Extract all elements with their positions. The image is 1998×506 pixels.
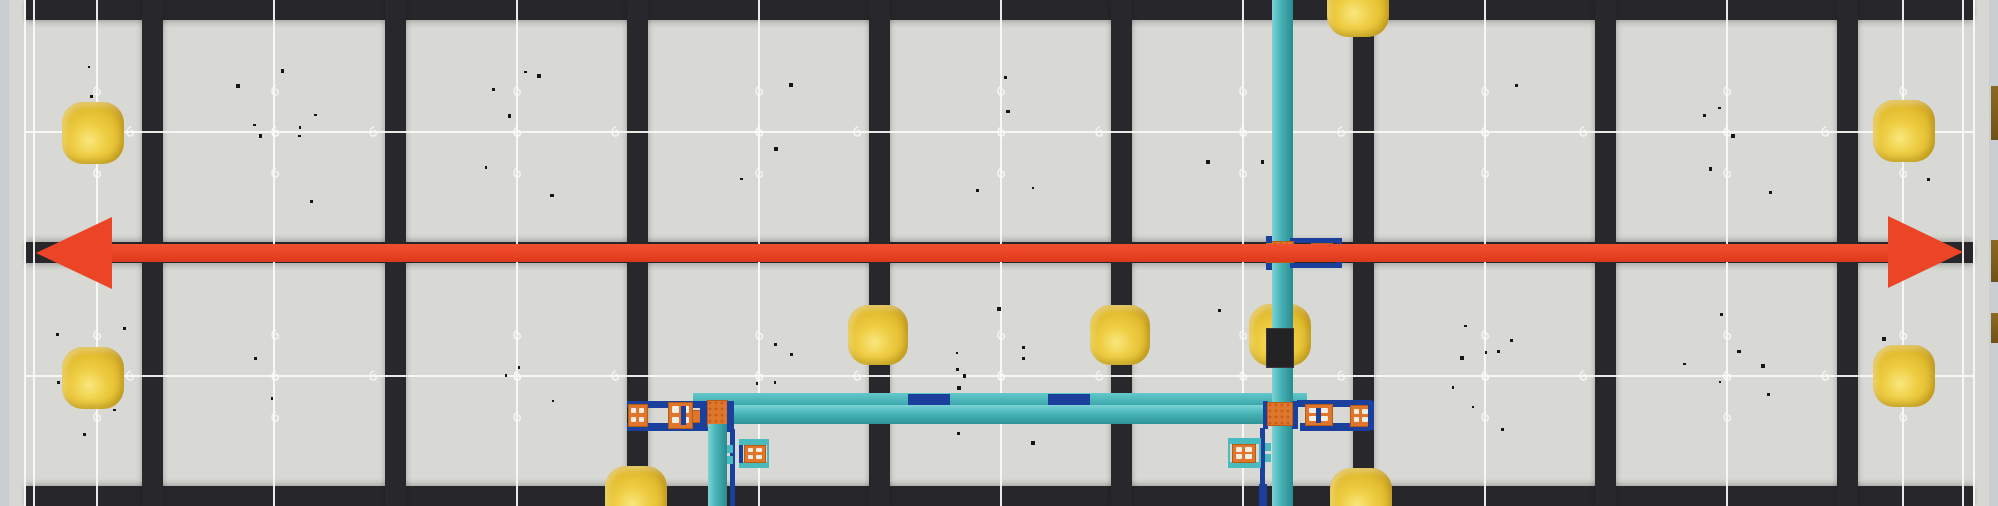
tile-peg-cluster <box>10 242 27 259</box>
tile-peg-cluster <box>1685 202 1702 219</box>
navy-bracket <box>1259 484 1267 506</box>
tile-peg-cluster <box>1839 443 1856 460</box>
navy-bracket <box>1368 401 1374 430</box>
tile-peg-cluster <box>30 121 47 138</box>
tile-peg-cluster <box>105 162 122 179</box>
tile-peg-cluster <box>539 41 556 58</box>
tile-peg-cluster <box>1977 483 1994 500</box>
tile-peg-cluster <box>1950 81 1967 98</box>
tile-peg-cluster <box>1113 41 1130 58</box>
tile-squiggle-mark <box>124 126 136 138</box>
tile-peg-cluster <box>144 483 161 500</box>
tile-peg-cluster <box>342 41 359 58</box>
teal-tab <box>727 456 733 464</box>
tile-peg-cluster <box>263 3 280 20</box>
tile-peg-cluster <box>1448 322 1465 339</box>
tile-peg-cluster <box>10 443 27 460</box>
tile-speck <box>1718 107 1720 109</box>
tile-peg-cluster <box>1171 322 1188 339</box>
tile-peg-cluster <box>1329 363 1346 380</box>
tile-peg-cluster <box>629 81 646 98</box>
tile-peg-cluster <box>816 363 833 380</box>
tile-peg-cluster <box>387 162 404 179</box>
tile-peg-cluster <box>105 41 122 58</box>
tile-peg-cluster <box>1013 483 1030 500</box>
connector-hole <box>1236 447 1242 452</box>
tile-peg-cluster <box>658 363 675 380</box>
tile-squiggle-mark <box>124 370 136 382</box>
tile-peg-cluster <box>500 322 517 339</box>
tile-peg-cluster <box>223 41 240 58</box>
tile-speck <box>756 382 758 384</box>
yellow-ball <box>605 466 667 506</box>
tile-peg-cluster <box>1211 282 1228 299</box>
tile-peg-cluster <box>1724 282 1741 299</box>
tile-peg-cluster <box>30 363 47 380</box>
tile-center-peg-cluster <box>741 115 775 149</box>
tile-peg-cluster <box>184 483 201 500</box>
tile-peg-cluster <box>421 81 438 98</box>
tile-peg-cluster <box>500 81 517 98</box>
tile-peg-cluster <box>387 81 404 98</box>
tile-peg-cluster <box>1013 202 1030 219</box>
tile-peg-cluster <box>1053 322 1070 339</box>
tile-squiggle-mark <box>1819 126 1831 138</box>
tile-speck <box>90 95 93 98</box>
tile-peg-cluster <box>10 41 27 58</box>
tile-peg-cluster <box>387 3 404 20</box>
tile-peg-cluster <box>1764 363 1781 380</box>
tile-speck <box>1927 178 1930 181</box>
tile-peg-cluster <box>1408 41 1425 58</box>
tile-peg-cluster <box>1803 202 1820 219</box>
orange-coupler <box>707 400 728 427</box>
tile-speck <box>1510 339 1513 342</box>
tile-peg-cluster <box>737 41 754 58</box>
tile-peg-cluster <box>184 3 201 20</box>
tile-peg-cluster <box>1013 41 1030 58</box>
tile-peg-cluster <box>1113 121 1130 138</box>
tile-peg-cluster <box>737 3 754 20</box>
tile-center-peg-cluster <box>983 115 1017 149</box>
tile-peg-cluster <box>1803 3 1820 20</box>
tile-peg-cluster <box>776 363 793 380</box>
tile-peg-cluster <box>1329 322 1346 339</box>
tile-peg-cluster <box>500 202 517 219</box>
tile-squiggle-mark <box>995 85 1007 97</box>
tile-peg-cluster <box>1171 363 1188 380</box>
tile-peg-cluster <box>1685 483 1702 500</box>
tile-peg-cluster <box>421 363 438 380</box>
tile-peg-cluster <box>816 483 833 500</box>
tile-peg-cluster <box>1764 202 1781 219</box>
tile-peg-cluster <box>460 81 477 98</box>
tile-speck <box>1472 406 1474 408</box>
tile-peg-cluster <box>1950 41 1967 58</box>
navy-bracket <box>730 429 735 506</box>
tile-peg-cluster <box>658 322 675 339</box>
connector-hole <box>1236 454 1242 459</box>
tile-peg-cluster <box>1685 403 1702 420</box>
tile-peg-cluster <box>1211 483 1228 500</box>
tile-squiggle-mark <box>753 167 765 179</box>
tile-peg-cluster <box>1355 41 1372 58</box>
tile-center-peg-cluster <box>1225 359 1259 393</box>
tile-peg-cluster <box>1922 322 1939 339</box>
tile-peg-cluster <box>1724 403 1741 420</box>
tile-peg-cluster <box>10 81 27 98</box>
tile-peg-cluster <box>1764 81 1781 98</box>
tile-peg-cluster <box>629 3 646 20</box>
navy-bracket <box>739 445 743 463</box>
tile-peg-cluster <box>1977 282 1994 299</box>
tile-peg-cluster <box>421 41 438 58</box>
field-wall-left-outer <box>0 0 9 506</box>
tile-peg-cluster <box>658 41 675 58</box>
yellow-ball <box>1330 468 1392 506</box>
tile-peg-cluster <box>934 162 951 179</box>
tile-peg-cluster <box>1013 443 1030 460</box>
tile-peg-cluster <box>816 202 833 219</box>
tile-peg-cluster <box>1839 121 1856 138</box>
tile-peg-cluster <box>1977 202 1994 219</box>
tile-squiggle-mark <box>753 329 765 341</box>
tile-peg-cluster <box>1113 81 1130 98</box>
tile-peg-cluster <box>1053 121 1070 138</box>
tile-peg-cluster <box>934 121 951 138</box>
tile-peg-cluster <box>460 121 477 138</box>
tile-peg-cluster <box>1566 363 1583 380</box>
tile-peg-cluster <box>1950 322 1967 339</box>
tile-peg-cluster <box>579 41 596 58</box>
navy-bracket <box>1266 263 1272 270</box>
yellow-ball <box>62 102 124 164</box>
tile-peg-cluster <box>1839 162 1856 179</box>
tile-peg-cluster <box>658 3 675 20</box>
tile-center-peg-cluster <box>741 359 775 393</box>
tile-speck <box>518 366 520 368</box>
tile-peg-cluster <box>1211 162 1228 179</box>
tile-peg-cluster <box>658 202 675 219</box>
tile-peg-cluster <box>302 443 319 460</box>
tile-peg-cluster <box>421 322 438 339</box>
tile-peg-cluster <box>1724 162 1741 179</box>
connector-hole <box>1321 408 1328 413</box>
tile-peg-cluster <box>1329 202 1346 219</box>
tile-peg-cluster <box>10 363 27 380</box>
tile-peg-cluster <box>1839 282 1856 299</box>
tile-peg-cluster <box>184 81 201 98</box>
tile-peg-cluster <box>1724 443 1741 460</box>
connector-hole <box>756 448 762 452</box>
tile-peg-cluster <box>1329 162 1346 179</box>
tile-peg-cluster <box>1113 443 1130 460</box>
tile-peg-cluster <box>697 3 714 20</box>
tile-peg-cluster <box>1950 483 1967 500</box>
tile-peg-cluster <box>1977 162 1994 179</box>
tile-peg-cluster <box>539 363 556 380</box>
tile-peg-cluster <box>421 403 438 420</box>
tile-peg-cluster <box>579 162 596 179</box>
red-arrow-head-right <box>1888 216 1963 288</box>
tile-peg-cluster <box>579 443 596 460</box>
tile-peg-cluster <box>460 202 477 219</box>
tile-peg-cluster <box>30 162 47 179</box>
tile-peg-cluster <box>144 41 161 58</box>
tile-peg-cluster <box>1839 403 1856 420</box>
tile-peg-cluster <box>1329 41 1346 58</box>
tile-peg-cluster <box>144 202 161 219</box>
tile-peg-cluster <box>1645 282 1662 299</box>
tile-peg-cluster <box>579 363 596 380</box>
tile-peg-cluster <box>1211 81 1228 98</box>
tile-peg-cluster <box>1448 403 1465 420</box>
tile-peg-cluster <box>105 3 122 20</box>
tile-peg-cluster <box>184 322 201 339</box>
tile-speck <box>956 368 959 371</box>
tile-peg-cluster <box>342 162 359 179</box>
tile-peg-cluster <box>1645 121 1662 138</box>
tile-peg-cluster <box>65 322 82 339</box>
tile-peg-cluster <box>1597 81 1614 98</box>
tile-peg-cluster <box>629 202 646 219</box>
tile-peg-cluster <box>1764 443 1781 460</box>
tile-peg-cluster <box>658 443 675 460</box>
tile-peg-cluster <box>184 282 201 299</box>
tile-peg-cluster <box>302 322 319 339</box>
tile-peg-cluster <box>1355 162 1372 179</box>
tile-peg-cluster <box>1487 322 1504 339</box>
tile-peg-cluster <box>387 363 404 380</box>
tile-peg-cluster <box>387 483 404 500</box>
tile-peg-cluster <box>871 41 888 58</box>
tile-peg-cluster <box>500 41 517 58</box>
tile-peg-cluster <box>263 282 280 299</box>
tile-peg-cluster <box>579 282 596 299</box>
tile-peg-cluster <box>1408 322 1425 339</box>
yellow-ball <box>1873 345 1935 407</box>
tile-squiggle-mark <box>609 126 621 138</box>
tile-peg-cluster <box>776 443 793 460</box>
tile-speck <box>1464 325 1467 328</box>
tile-peg-cluster <box>1685 363 1702 380</box>
tile-peg-cluster <box>1013 322 1030 339</box>
tile-peg-cluster <box>1211 41 1228 58</box>
navy-bracket <box>1316 408 1321 423</box>
tile-peg-cluster <box>30 483 47 500</box>
tile-peg-cluster <box>387 322 404 339</box>
tile-peg-cluster <box>1527 3 1544 20</box>
tile-peg-cluster <box>421 443 438 460</box>
tile-peg-cluster <box>1645 403 1662 420</box>
tile-squiggle-mark <box>1819 370 1831 382</box>
red-arrow-head-left <box>36 217 112 289</box>
tile-speck <box>789 83 793 87</box>
tile-center-peg-cluster <box>499 115 533 149</box>
tile-peg-cluster <box>1053 3 1070 20</box>
tile-peg-cluster <box>1597 3 1614 20</box>
tile-peg-cluster <box>1527 81 1544 98</box>
tile-peg-cluster <box>65 162 82 179</box>
tile-peg-cluster <box>934 322 951 339</box>
navy-bracket <box>681 406 686 425</box>
tile-peg-cluster <box>1597 322 1614 339</box>
tile-peg-cluster <box>629 121 646 138</box>
tile-peg-cluster <box>1211 322 1228 339</box>
tile-squiggle-mark <box>1093 126 1105 138</box>
tile-peg-cluster <box>737 322 754 339</box>
tile-peg-cluster <box>1527 322 1544 339</box>
tile-peg-cluster <box>871 162 888 179</box>
tile-peg-cluster <box>539 322 556 339</box>
tile-speck <box>774 381 777 384</box>
tile-peg-cluster <box>816 3 833 20</box>
tile-peg-cluster <box>1764 483 1781 500</box>
tile-peg-cluster <box>342 443 359 460</box>
tile-peg-cluster <box>1597 483 1614 500</box>
tile-peg-cluster <box>1764 403 1781 420</box>
tile-speck <box>259 134 263 138</box>
tile-peg-cluster <box>934 443 951 460</box>
tile-peg-cluster <box>460 483 477 500</box>
tile-peg-cluster <box>1448 121 1465 138</box>
tile-peg-cluster <box>1724 322 1741 339</box>
tile-peg-cluster <box>302 403 319 420</box>
tile-peg-cluster <box>1685 282 1702 299</box>
tile-peg-cluster <box>144 3 161 20</box>
tile-peg-cluster <box>1839 41 1856 58</box>
tile-peg-cluster <box>871 483 888 500</box>
tile-peg-cluster <box>934 363 951 380</box>
tile-peg-cluster <box>1329 81 1346 98</box>
goal-top-rail <box>693 393 1307 405</box>
tile-squiggle-mark <box>91 329 103 341</box>
tile-speck <box>1703 114 1706 117</box>
tile-speck <box>254 357 257 360</box>
tile-center-peg-cluster <box>1225 115 1259 149</box>
tile-peg-cluster <box>1171 202 1188 219</box>
tile-peg-cluster <box>1329 443 1346 460</box>
tile-peg-cluster <box>460 282 477 299</box>
orange-connector <box>744 445 766 463</box>
tile-peg-cluster <box>263 162 280 179</box>
tile-peg-cluster <box>871 282 888 299</box>
tile-peg-cluster <box>342 282 359 299</box>
tile-peg-cluster <box>871 202 888 219</box>
tile-peg-cluster <box>697 41 714 58</box>
tile-peg-cluster <box>144 121 161 138</box>
tile-peg-cluster <box>974 443 991 460</box>
tile-peg-cluster <box>65 41 82 58</box>
tile-peg-cluster <box>1250 162 1267 179</box>
tile-peg-cluster <box>697 363 714 380</box>
tile-peg-cluster <box>1355 202 1372 219</box>
tile-peg-cluster <box>1487 41 1504 58</box>
tile-speck <box>298 135 301 138</box>
tile-peg-cluster <box>1803 363 1820 380</box>
tile-peg-cluster <box>421 3 438 20</box>
tile-center-peg-cluster <box>1709 115 1743 149</box>
tile-squiggle-mark <box>1237 329 1249 341</box>
tile-peg-cluster <box>697 81 714 98</box>
tile-squiggle-mark <box>1237 167 1249 179</box>
tile-peg-cluster <box>1250 202 1267 219</box>
tile-peg-cluster <box>1487 3 1504 20</box>
tile-peg-cluster <box>1839 483 1856 500</box>
tile-peg-cluster <box>1171 41 1188 58</box>
tile-peg-cluster <box>539 282 556 299</box>
tile-peg-cluster <box>629 363 646 380</box>
tile-peg-cluster <box>934 41 951 58</box>
tile-peg-cluster <box>539 443 556 460</box>
tile-peg-cluster <box>1250 41 1267 58</box>
tile-peg-cluster <box>1113 162 1130 179</box>
tile-peg-cluster <box>539 483 556 500</box>
tile-peg-cluster <box>776 162 793 179</box>
connector-hole <box>639 417 644 423</box>
tile-speck <box>1767 393 1770 396</box>
tile-peg-cluster <box>1053 363 1070 380</box>
tile-peg-cluster <box>1408 202 1425 219</box>
tile-peg-cluster <box>1597 41 1614 58</box>
tile-peg-cluster <box>1487 162 1504 179</box>
tile-peg-cluster <box>776 282 793 299</box>
tile-peg-cluster <box>1922 3 1939 20</box>
tile-center-peg-cluster <box>983 359 1017 393</box>
tile-peg-cluster <box>1685 162 1702 179</box>
tile-peg-cluster <box>144 282 161 299</box>
tile-peg-cluster <box>342 3 359 20</box>
connector-hole <box>1354 409 1360 414</box>
tile-peg-cluster <box>1329 121 1346 138</box>
field-viewport[interactable] <box>0 0 1998 506</box>
tile-peg-cluster <box>1803 81 1820 98</box>
tile-speck <box>1761 364 1765 368</box>
tile-speck <box>524 71 526 73</box>
tile-peg-cluster <box>1487 403 1504 420</box>
tile-squiggle-mark <box>1237 85 1249 97</box>
tile-squiggle-mark <box>91 411 103 423</box>
tile-peg-cluster <box>1053 41 1070 58</box>
teal-tab <box>1265 443 1271 451</box>
tile-peg-cluster <box>1171 3 1188 20</box>
yellow-ball <box>1873 100 1935 162</box>
tile-peg-cluster <box>1882 162 1899 179</box>
tile-peg-cluster <box>1487 282 1504 299</box>
tile-peg-cluster <box>144 363 161 380</box>
tile-peg-cluster <box>263 41 280 58</box>
tile-peg-cluster <box>1053 202 1070 219</box>
tile-peg-cluster <box>223 363 240 380</box>
tile-peg-cluster <box>697 322 714 339</box>
tile-peg-cluster <box>1566 322 1583 339</box>
tile-peg-cluster <box>1329 282 1346 299</box>
tile-peg-cluster <box>1724 202 1741 219</box>
tile-speck <box>1022 357 1025 360</box>
tile-peg-cluster <box>1803 162 1820 179</box>
tile-peg-cluster <box>1171 81 1188 98</box>
tile-peg-cluster <box>1566 202 1583 219</box>
tile-peg-cluster <box>974 202 991 219</box>
tile-peg-cluster <box>1950 363 1967 380</box>
tile-peg-cluster <box>1448 483 1465 500</box>
tile-peg-cluster <box>1527 363 1544 380</box>
tile-squiggle-mark <box>753 85 765 97</box>
tile-squiggle-mark <box>995 329 1007 341</box>
tile-peg-cluster <box>539 3 556 20</box>
tile-peg-cluster <box>1527 162 1544 179</box>
tile-speck <box>1006 110 1009 113</box>
